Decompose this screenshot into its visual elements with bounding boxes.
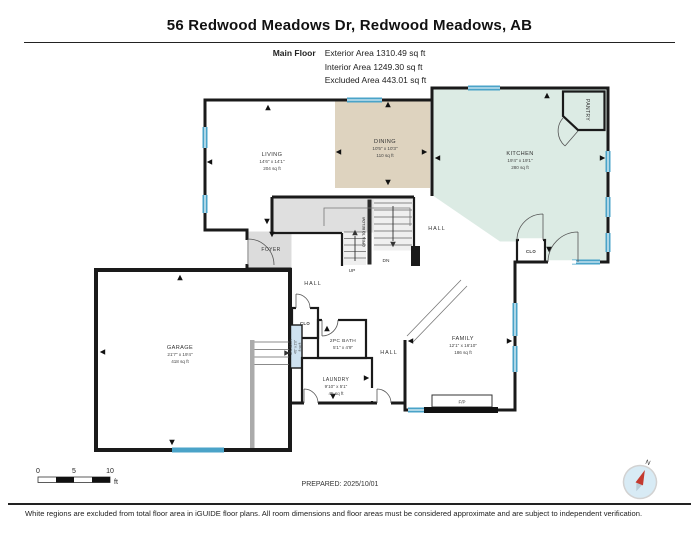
dining-label: DINING xyxy=(374,139,396,145)
dining-area: 110 sq ft xyxy=(376,153,394,158)
staircase xyxy=(272,197,420,266)
bath-strip-label: 2PC BATH xyxy=(289,339,293,355)
laundry-area: 45 sq ft xyxy=(328,391,344,396)
hall-label-mid: HALL xyxy=(304,281,322,287)
scale-unit: ft xyxy=(114,479,118,486)
garage-stairs xyxy=(250,340,290,448)
pantry-label: PANTRY xyxy=(584,99,590,121)
footer-divider xyxy=(8,503,691,505)
garage-area: 418 sq ft xyxy=(171,359,189,364)
prepared-date: PREPARED: 2025/10/01 xyxy=(302,481,379,488)
scale-tick-0: 0 xyxy=(36,468,40,475)
laundry-dims: 9'10" x 5'1" xyxy=(325,384,348,389)
floorplan-drawing: LIVING 14'6" x 14'1" 204 sq ft DINING 10… xyxy=(0,0,699,540)
garage-outline xyxy=(96,270,290,450)
family-dims: 12'1" x 16'10" xyxy=(449,343,477,348)
stairs-up-label: UP xyxy=(349,268,356,274)
kitchen-label: KITCHEN xyxy=(506,151,533,157)
foyer-label: FOYER xyxy=(261,247,280,253)
bath-dims: 5'1" x 4'9" xyxy=(333,345,353,350)
hall-label-lower: HALL xyxy=(380,350,398,356)
room-kitchen-fill xyxy=(434,90,607,261)
kitchen-dims: 19'4" x 19'1" xyxy=(507,158,533,163)
closet-hall-label: CLO xyxy=(300,321,310,326)
bath-strip-area: 8 sq ft xyxy=(298,343,302,352)
stairs-down-label: DN xyxy=(383,258,390,264)
living-label: LIVING xyxy=(262,152,283,158)
hall-label-upper: HALL xyxy=(428,226,446,232)
family-area: 186 sq ft xyxy=(454,350,472,355)
scale-tick-5: 5 xyxy=(72,468,76,475)
compass-icon: N xyxy=(619,454,665,504)
living-dims: 14'6" x 14'1" xyxy=(259,159,285,164)
bath-label: 2PC BATH xyxy=(330,338,356,344)
scale-bar: 0 5 10 ft xyxy=(36,468,118,486)
scale-tick-10: 10 xyxy=(106,468,114,475)
garage-label: GARAGE xyxy=(167,345,193,351)
garage-dims: 21'7" x 19'4" xyxy=(167,352,193,357)
kitchen-area: 280 sq ft xyxy=(511,165,529,170)
living-area: 204 sq ft xyxy=(263,166,281,171)
fireplace-label: F/P xyxy=(458,400,465,405)
floorplan-page: 56 Redwood Meadows Dr, Redwood Meadows, … xyxy=(0,0,699,540)
laundry-label: LAUNDRY xyxy=(323,377,350,383)
family-label: FAMILY xyxy=(452,336,474,342)
closet-kitchen-label: CLO xyxy=(526,249,536,254)
disclaimer-text: White regions are excluded from total fl… xyxy=(25,509,689,518)
dining-dims: 10'5" x 10'3" xyxy=(372,146,398,151)
bath-strip-dims: 4'0" x 2'0" xyxy=(294,340,298,354)
open-to-below-label: OPEN TO BELOW xyxy=(362,216,366,247)
